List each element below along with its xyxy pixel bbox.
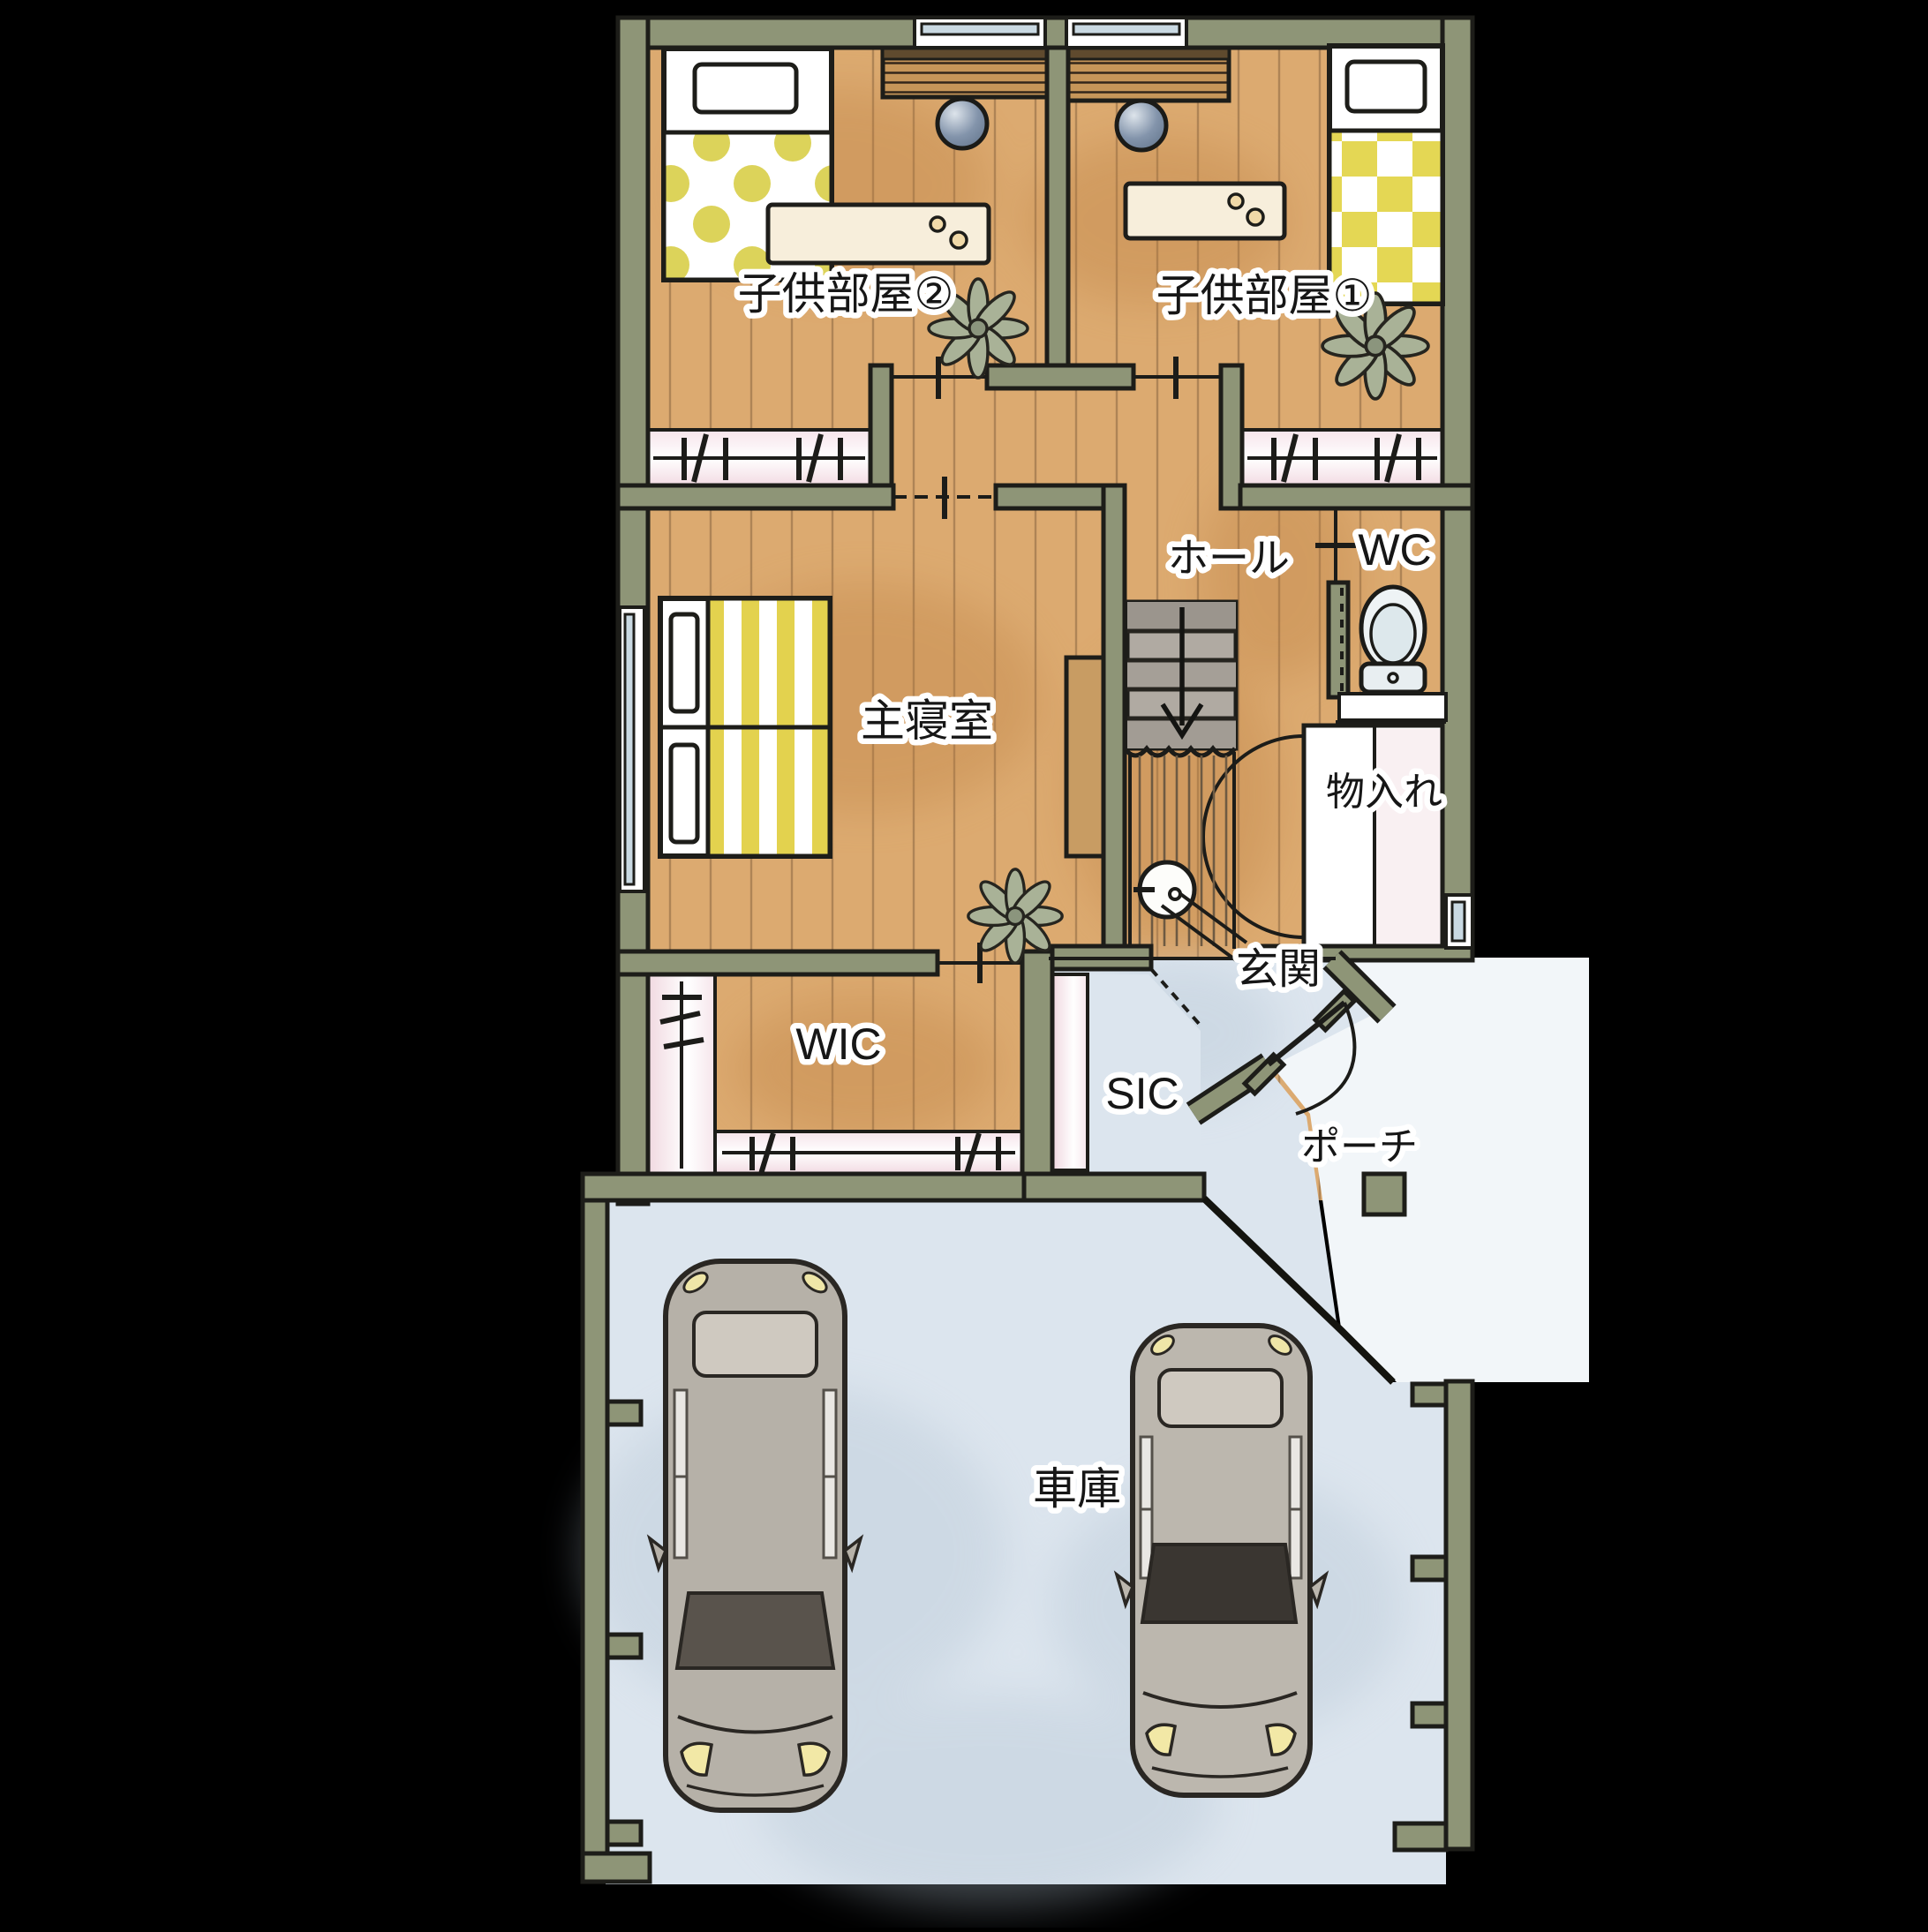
label-garage: 車庫 xyxy=(1033,1464,1121,1514)
master-bed xyxy=(660,598,830,856)
label-storage: 物入れ xyxy=(1326,771,1442,814)
master-plant-icon xyxy=(968,869,1062,963)
car-icon xyxy=(1117,1326,1326,1795)
master-window xyxy=(620,607,644,891)
label-wc: WC xyxy=(1358,525,1431,575)
kids1-desk xyxy=(1126,184,1284,238)
kids2-ball-icon xyxy=(938,99,987,148)
master-dresser xyxy=(1066,658,1103,856)
storage-side-window xyxy=(1446,895,1472,948)
kids2-desk xyxy=(768,205,989,263)
kids2-window xyxy=(915,18,1045,48)
wc-counter xyxy=(1339,694,1446,720)
kids1-closet xyxy=(1068,46,1229,101)
kids1-bed xyxy=(1329,46,1442,304)
car-icon xyxy=(650,1261,861,1810)
label-hall: ホール xyxy=(1168,535,1290,581)
kids1-window xyxy=(1066,18,1186,48)
kids2-closet xyxy=(883,46,1047,97)
label-wic: WIC xyxy=(795,1019,881,1069)
label-kids2: 子供部屋② xyxy=(738,269,954,319)
label-kids1: 子供部屋① xyxy=(1156,271,1373,320)
kids1-ball-icon xyxy=(1117,101,1166,150)
label-sic: SIC xyxy=(1105,1069,1179,1118)
porch-pillar xyxy=(1364,1174,1405,1214)
kids1-hanger-closet xyxy=(1240,430,1444,486)
kids2-hanger-closet xyxy=(646,430,870,486)
label-entrance: 玄関 xyxy=(1236,946,1321,993)
label-porch: ポーチ xyxy=(1301,1125,1418,1169)
floor-plan: 子供部屋② 子供部屋① ホール WC 主寝室 物入れ 玄関 WIC SIC ポー… xyxy=(0,0,1928,1932)
label-master: 主寝室 xyxy=(861,696,993,746)
